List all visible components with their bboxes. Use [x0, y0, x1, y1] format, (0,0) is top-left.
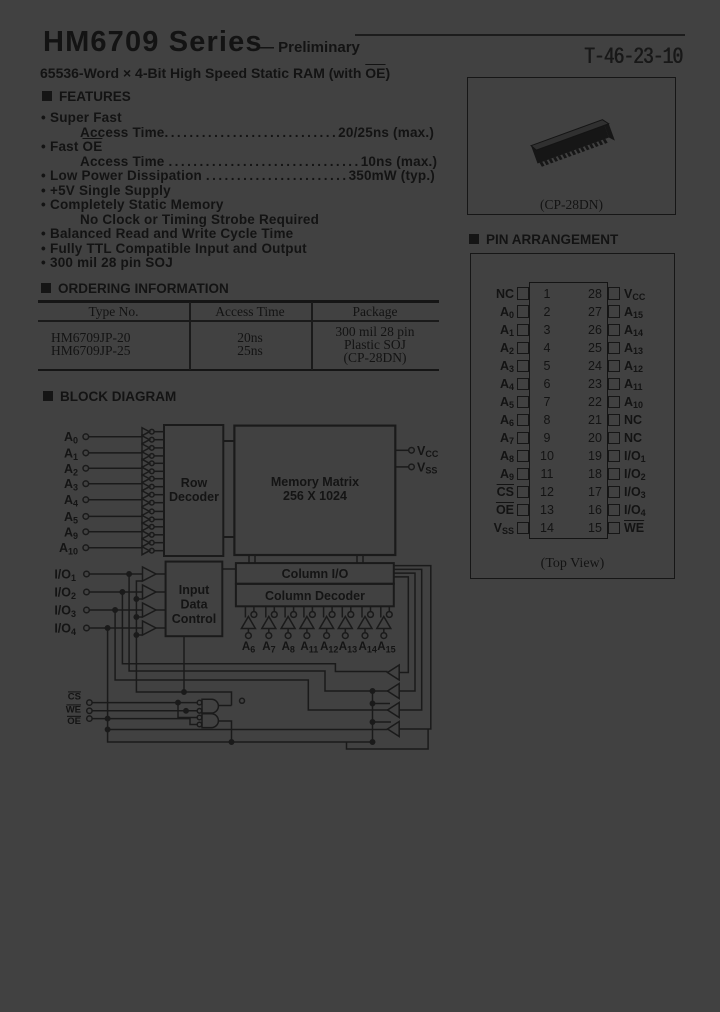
- svg-text:A9: A9: [64, 525, 78, 541]
- svg-text:A4: A4: [64, 493, 78, 509]
- svg-text:Control: Control: [172, 612, 216, 626]
- svg-text:A13: A13: [339, 641, 357, 655]
- svg-text:A6: A6: [242, 641, 255, 655]
- svg-text:Data: Data: [180, 598, 208, 612]
- svg-text:VSS: VSS: [417, 461, 437, 476]
- svg-text:VCC: VCC: [417, 444, 439, 459]
- svg-text:A3: A3: [64, 477, 78, 493]
- svg-text:I/O4: I/O4: [54, 622, 76, 638]
- svg-text:256 X 1024: 256 X 1024: [283, 489, 347, 503]
- svg-text:Column I/O: Column I/O: [282, 567, 349, 581]
- svg-text:A0: A0: [64, 430, 78, 446]
- svg-text:Decoder: Decoder: [169, 490, 219, 504]
- svg-text:WE: WE: [66, 704, 81, 715]
- svg-text:A14: A14: [359, 641, 377, 655]
- svg-text:A5: A5: [64, 510, 78, 526]
- svg-text:A2: A2: [64, 462, 78, 478]
- svg-text:A8: A8: [282, 641, 295, 655]
- svg-text:Column Decoder: Column Decoder: [265, 589, 365, 603]
- svg-text:A1: A1: [64, 446, 78, 462]
- svg-text:A12: A12: [320, 641, 338, 655]
- svg-text:CS: CS: [68, 691, 81, 702]
- svg-text:Input: Input: [179, 583, 210, 597]
- svg-text:A11: A11: [300, 641, 318, 655]
- svg-text:Memory Matrix: Memory Matrix: [271, 475, 359, 489]
- svg-text:A7: A7: [262, 641, 275, 655]
- svg-text:I/O1: I/O1: [54, 568, 76, 584]
- svg-text:I/O2: I/O2: [54, 586, 76, 602]
- svg-text:I/O3: I/O3: [54, 604, 76, 620]
- svg-text:A15: A15: [377, 641, 395, 655]
- svg-text:Row: Row: [181, 476, 208, 490]
- svg-text:A10: A10: [59, 541, 78, 557]
- svg-text:OE: OE: [67, 716, 81, 727]
